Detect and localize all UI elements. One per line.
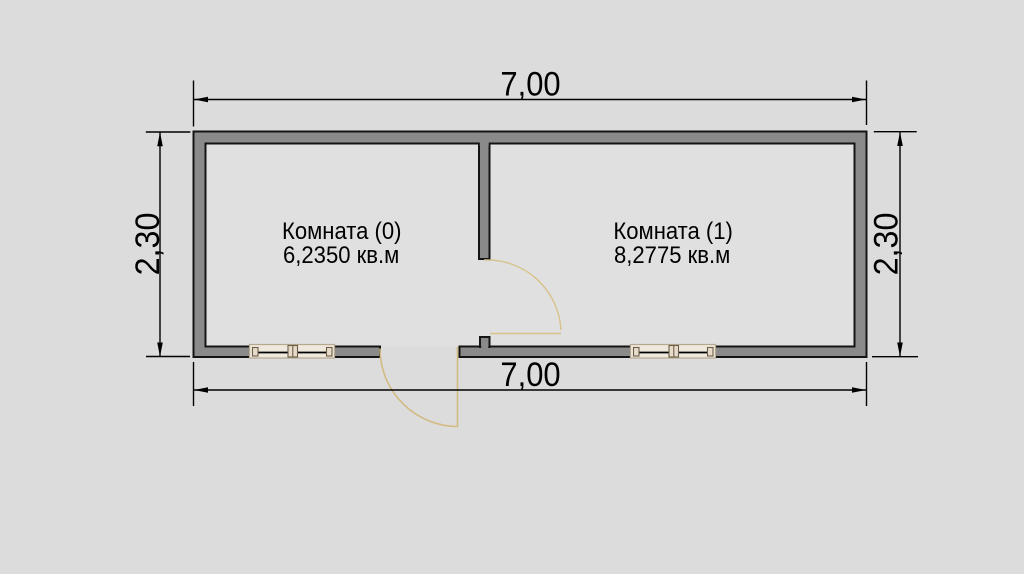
svg-text:Комната (1): Комната (1) [613,217,733,244]
svg-text:Комната (0): Комната (0) [282,217,402,244]
svg-text:2,30: 2,30 [868,213,906,276]
svg-text:7,00: 7,00 [500,356,560,394]
svg-text:6,2350 кв.м: 6,2350 кв.м [283,241,399,268]
svg-text:7,00: 7,00 [500,65,560,103]
svg-text:2,30: 2,30 [129,213,167,276]
svg-text:8,2775 кв.м: 8,2775 кв.м [614,241,730,268]
